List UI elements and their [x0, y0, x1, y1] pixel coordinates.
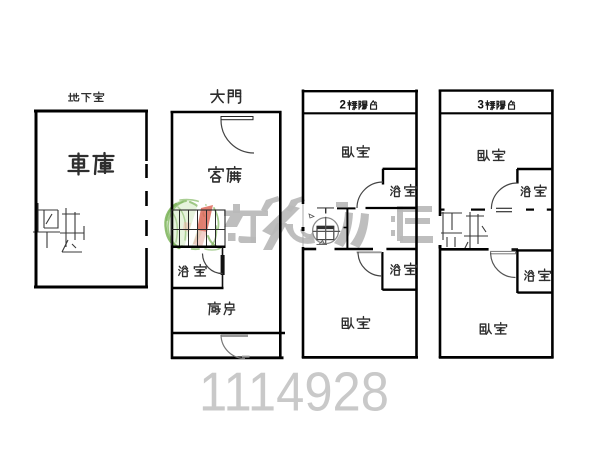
svg-text:3: 3: [478, 99, 484, 111]
svg-text:1114928: 1114928: [199, 361, 389, 423]
svg-text:2: 2: [340, 99, 346, 111]
